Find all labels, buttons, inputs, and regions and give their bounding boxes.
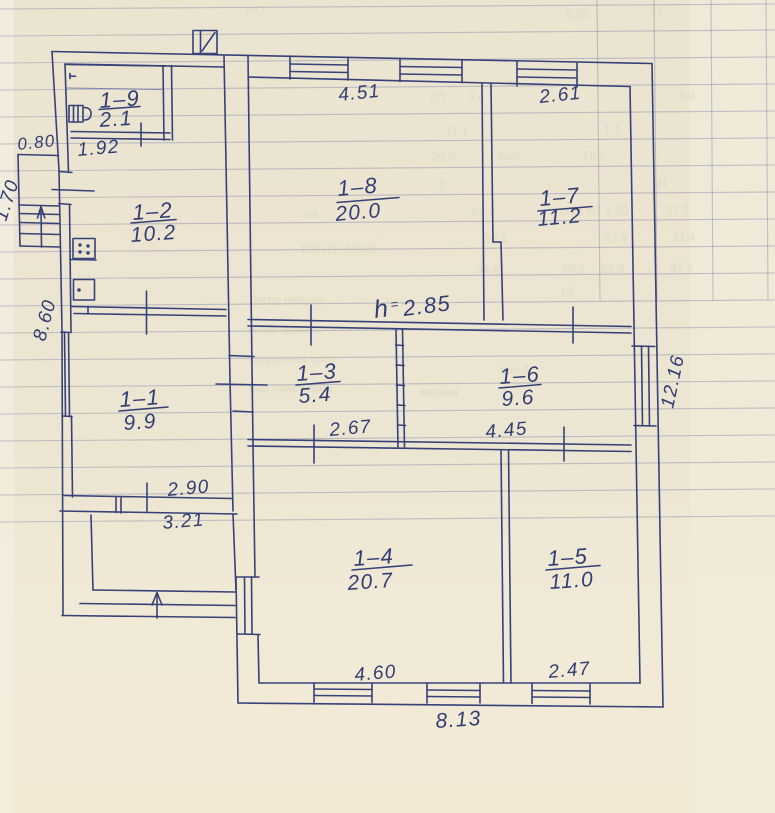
svg-text:9.4: 9.4 [679,89,696,103]
svg-text:2.90: 2.90 [166,476,211,501]
svg-text:багов напутні: багов напутні [250,293,324,307]
svg-text:51: 51 [650,5,664,19]
svg-text:0.80: 0.80 [16,131,56,154]
svg-text:2.67: 2.67 [328,416,373,441]
svg-text:20.7: 20.7 [346,569,395,595]
svg-text:50.1: 50.1 [484,232,508,246]
svg-text:20.0: 20.0 [333,199,382,226]
svg-text:5.4: 5.4 [298,383,333,408]
svg-text:11.2: 11.2 [536,204,582,231]
svg-text:11.4: 11.4 [673,230,696,244]
svg-text:1.92: 1.92 [77,136,121,161]
svg-text:04.А: 04.А [476,263,501,277]
svg-text:Вал: Вал [498,149,520,163]
svg-text:4.60: 4.60 [354,661,398,686]
svg-text:4.45: 4.45 [485,418,529,443]
svg-text:62.9: 62.9 [601,262,625,276]
svg-text:9.9: 9.9 [123,410,158,435]
svg-text:1–8: 1–8 [336,173,379,201]
svg-text:37.1: 37.1 [670,261,694,275]
svg-text:10.2: 10.2 [130,221,178,247]
svg-text:10: 10 [560,285,574,299]
svg-text:=: = [390,296,401,312]
svg-text:8.13: 8.13 [435,707,483,733]
svg-text:9.6: 9.6 [501,386,536,411]
svg-text:сП: сП [430,91,445,105]
svg-text:ІчО: ІчО [246,3,265,17]
svg-text:па: па [305,207,318,221]
svg-text:8.05: 8.05 [566,7,590,21]
svg-text:31: 31 [655,177,669,191]
svg-text:100 грн.(ціна): 100 грн.(ціна) [300,242,375,256]
svg-text:ватная: ватная [420,385,458,399]
svg-text:37.2: 37.2 [666,203,690,217]
svg-text:Пол: Пол [584,149,606,163]
svg-text:4.51: 4.51 [337,81,381,106]
svg-text:20.0: 20.0 [432,150,456,164]
svg-text:11.1: 11.1 [446,124,469,138]
svg-text:62.9: 62.9 [604,231,628,245]
svg-text:2.1: 2.1 [98,107,134,132]
svg-text:11.0: 11.0 [549,568,595,594]
svg-text:50.1: 50.1 [562,262,586,276]
svg-text:2.61: 2.61 [537,83,582,108]
svg-text:5: 5 [439,179,446,193]
svg-text:2.47: 2.47 [547,658,592,683]
svg-text:1.1: 1.1 [604,122,621,136]
